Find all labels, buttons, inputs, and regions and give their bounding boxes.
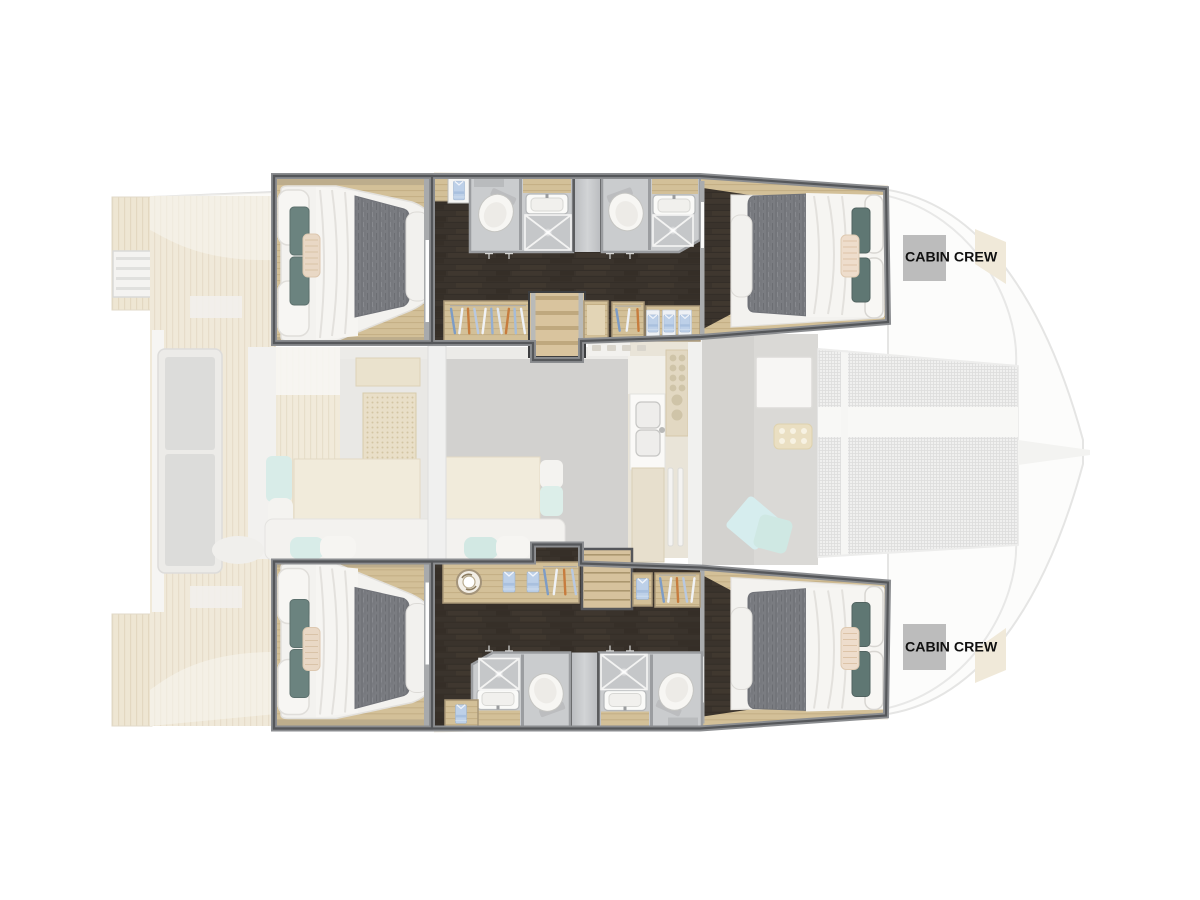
svg-text:CABIN CREW: CABIN CREW (905, 640, 998, 656)
svg-text:CABIN CREW: CABIN CREW (905, 250, 998, 266)
